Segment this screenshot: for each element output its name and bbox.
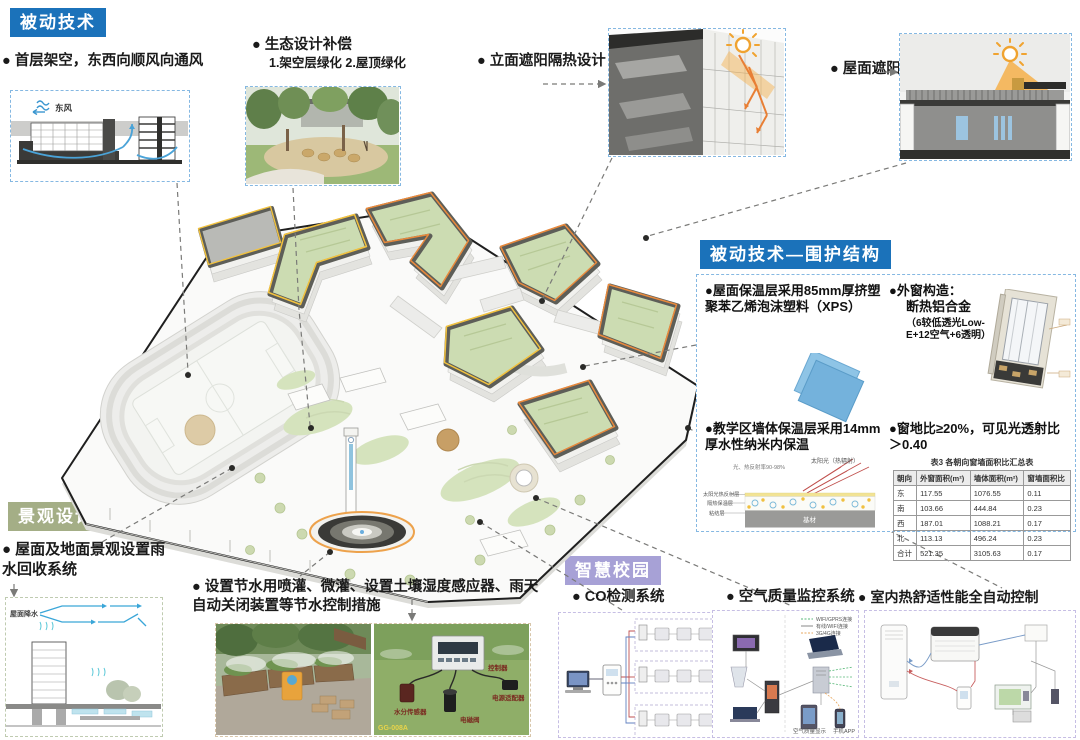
- svg-text:水分传感器: 水分传感器: [394, 707, 427, 716]
- svg-text:电磁阀: 电磁阀: [460, 715, 480, 724]
- controller-icon: [603, 665, 621, 695]
- envelope-panel: ●屋面保温层采用85mm厚挤塑聚苯乙烯泡沫塑料（XPS） ●外窗构造： 断热铝合…: [696, 274, 1076, 532]
- infographic-page: 被动技术 景观设计 智慧校园 被动技术—围护结构 ●首层架空，东西向顺风向通风 …: [0, 0, 1080, 740]
- stilt-ventilation-diagram: 东风: [10, 90, 190, 182]
- callout-air-quality-system: ●空气质量监控系统: [726, 588, 855, 607]
- svg-text:隔热保温层: 隔热保温层: [707, 499, 733, 507]
- callout-facade-shading: ●立面遮阳隔热设计: [477, 52, 606, 71]
- air-quality-diagram: WIFI/GPRS连接 有线/WIFI连接 3G/4G连接: [712, 610, 859, 738]
- table-row: 东117.551076.550.11: [894, 486, 1071, 501]
- roof-shading-illustration: [900, 34, 1070, 159]
- svg-text:GG-008A: GG-008A: [378, 725, 408, 732]
- facade-shading-photo: [608, 28, 786, 157]
- bullet-dot: ●: [830, 61, 839, 77]
- roof-shading-photo: [899, 33, 1072, 161]
- air-quality-illustration: WIFI/GPRS连接 有线/WIFI连接 3G/4G连接: [713, 611, 857, 736]
- irrigation-illustrations: 水分传感器 控制器 电磁阀 电源适配器 GG-008A: [216, 624, 529, 735]
- svg-text:空气质量显示: 空气质量显示: [793, 727, 827, 735]
- table-row: 南103.66444.840.23: [894, 501, 1071, 516]
- window-frame-graphic: [983, 289, 1071, 401]
- callout-eco-design: ●生态设计补偿 1.架空层绿化 2.屋顶绿化: [252, 36, 406, 71]
- co-detection-diagram: [558, 612, 730, 738]
- rainwater-diagram: 屋面降水: [5, 597, 163, 737]
- callout-water-saving: ●设置节水用喷灌、微灌、设置土壤湿度感应器、雨天自动关闭装置等节水控制措施: [192, 578, 540, 616]
- irrigation-photos: 水分传感器 控制器 电磁阀 电源适配器 GG-008A: [215, 623, 531, 737]
- svg-text:粘结层: 粘结层: [709, 509, 725, 517]
- window-wall-table-wrap: 表3 各朝向窗墙面积比汇总表 朝向 外窗面积(m²) 墙体面积(m²) 窗墙面积…: [893, 457, 1071, 561]
- bullet-dot: ●: [252, 37, 261, 53]
- envelope-item-window-ratio: ●窗地比≥20%，可见光透射比＞0.40: [889, 421, 1071, 454]
- bullet-dot: ●: [477, 53, 486, 69]
- callout-eco-sub: 1.架空层绿化 2.屋顶绿化: [269, 55, 406, 71]
- clock-tower: [344, 428, 358, 514]
- badge-smart-campus: 智慧校园: [565, 556, 661, 585]
- svg-text:电源适配器: 电源适配器: [492, 693, 525, 702]
- svg-text:光、热反射率90-98%: 光、热反射率90-98%: [733, 463, 785, 471]
- legend: WIFI/GPRS连接 有线/WIFI连接 3G/4G连接: [801, 616, 852, 637]
- envelope-item-roof-insulation: ●屋面保温层采用85mm厚挤塑聚苯乙烯泡沫塑料（XPS）: [705, 283, 885, 316]
- computer-icon: [565, 671, 591, 693]
- callout-stilt-ventilation: ●首层架空，东西向顺风向通风: [2, 52, 217, 71]
- window-wall-ratio-table: 朝向 外窗面积(m²) 墙体面积(m²) 窗墙面积比 东117.551076.5…: [893, 470, 1071, 561]
- spiral-plaza: [310, 512, 414, 552]
- badge-passive-tech: 被动技术: [10, 8, 106, 37]
- svg-text:太阳光（热辐射）: 太阳光（热辐射）: [811, 457, 859, 465]
- eco-greenery-photo: [245, 86, 401, 186]
- table-row: 合计521.353105.630.17: [894, 546, 1071, 561]
- svg-text:3G/4G连接: 3G/4G连接: [816, 630, 841, 637]
- svg-text:控制器: 控制器: [488, 663, 508, 672]
- callout-roof-shading: ●屋面遮阳: [830, 60, 901, 79]
- envelope-item-wall-insulation: ●教学区墙体保温层采用14mm厚水性纳米内保温: [705, 421, 883, 454]
- table-row: 北113.13496.240.23: [894, 531, 1071, 546]
- bullet-dot: ●: [2, 53, 11, 69]
- wind-label: 东风: [55, 103, 73, 113]
- svg-text:基材: 基材: [803, 515, 817, 524]
- svg-text:有线/WIFI连接: 有线/WIFI连接: [816, 623, 848, 630]
- thermal-comfort-diagram: [864, 610, 1076, 738]
- svg-text:手机APP: 手机APP: [833, 727, 855, 735]
- badge-landscape: 景观设计: [8, 502, 104, 531]
- rainwater-illustration: 屋面降水: [6, 598, 161, 735]
- callout-rainwater: ●屋面及地面景观设置雨水回收系统: [2, 540, 177, 579]
- callout-co-system: ●CO检测系统: [572, 588, 665, 607]
- svg-text:屋面降水: 屋面降水: [10, 609, 39, 618]
- thermal-comfort-illustration: [865, 611, 1074, 736]
- co-detection-illustration: [559, 613, 728, 736]
- xps-board-graphic: [779, 353, 879, 423]
- wall-section-diagram: 太阳光（热辐射） 光、热反射率90-98% 基材 太阳光热反射层 隔热保温层 粘…: [703, 455, 881, 529]
- svg-text:WIFI/GPRS连接: WIFI/GPRS连接: [816, 616, 852, 623]
- facade-shading-illustration: [609, 29, 784, 155]
- callout-thermal-comfort: ●室内热舒适性能全自动控制: [858, 588, 1078, 606]
- wind-section-illustration: 东风: [11, 91, 188, 180]
- envelope-item-window: ●外窗构造： 断热铝合金 （6较低透光Low-E+12空气+6透明）: [889, 283, 997, 342]
- greenery-illustration: [246, 87, 399, 184]
- table-row: 西187.011088.210.17: [894, 516, 1071, 531]
- svg-text:太阳光热反射层: 太阳光热反射层: [703, 490, 739, 498]
- table-title: 表3 各朝向窗墙面积比汇总表: [893, 457, 1071, 468]
- badge-envelope: 被动技术—围护结构: [700, 240, 891, 269]
